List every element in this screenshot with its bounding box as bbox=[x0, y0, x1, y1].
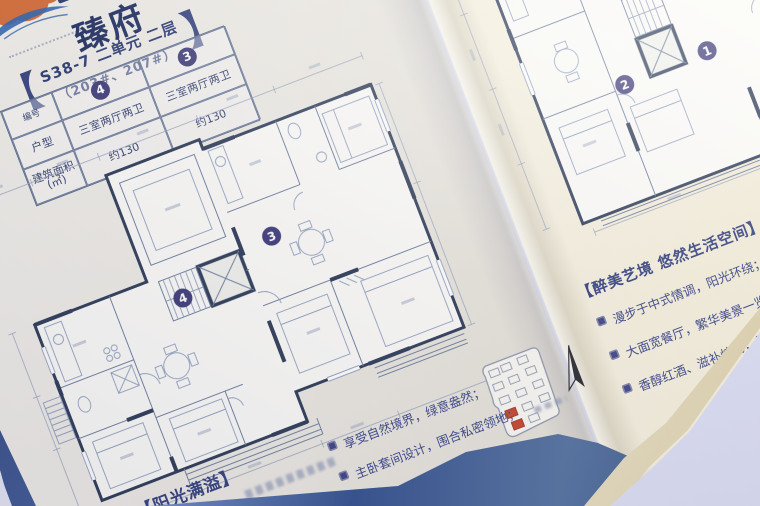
ornament-square-icon bbox=[349, 500, 361, 506]
ornament-square-icon bbox=[621, 382, 633, 394]
open-brochure: 臻府 【 S38-7 二单元 二层 （203#、207#） 】 编号 4 3 户… bbox=[0, 0, 760, 506]
unit-3-badge: 3 bbox=[175, 44, 200, 69]
ornament-square-icon bbox=[338, 470, 350, 482]
ornament-square-icon bbox=[609, 349, 621, 361]
unit-4-badge: 4 bbox=[88, 78, 113, 103]
brochure-photo-scene: 臻府 【 S38-7 二单元 二层 （203#、207#） 】 编号 4 3 户… bbox=[0, 0, 760, 506]
ornament-square-icon bbox=[596, 315, 608, 327]
ornament-square-icon bbox=[326, 440, 338, 452]
